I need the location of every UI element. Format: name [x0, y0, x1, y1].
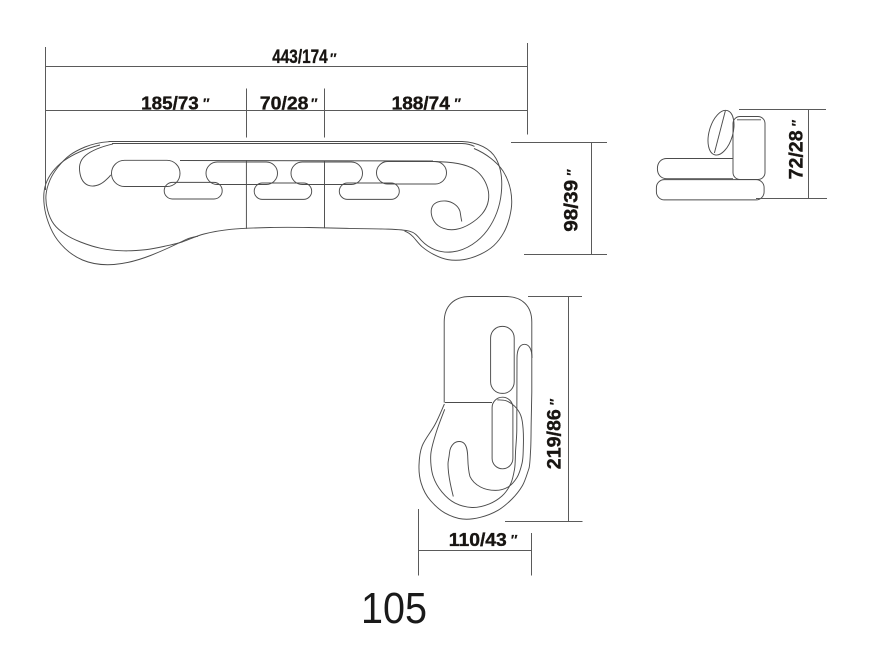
svg-text:″: ″ — [454, 95, 461, 111]
svg-text:″: ″ — [330, 50, 337, 66]
svg-text:72/28: 72/28 — [786, 130, 808, 179]
svg-text:″: ″ — [311, 95, 318, 111]
svg-text:70/28: 70/28 — [260, 93, 309, 114]
svg-text:98/39: 98/39 — [561, 180, 583, 232]
svg-text:110/43: 110/43 — [449, 529, 507, 550]
svg-text:″: ″ — [203, 95, 210, 111]
svg-text:105: 105 — [361, 584, 427, 633]
svg-text:″: ″ — [564, 169, 580, 176]
svg-text:188/74: 188/74 — [392, 93, 451, 114]
svg-text:443/174: 443/174 — [272, 47, 328, 68]
svg-text:″: ″ — [547, 398, 563, 405]
svg-text:185/73: 185/73 — [141, 93, 199, 114]
svg-text:″: ″ — [789, 119, 805, 126]
svg-text:219/86: 219/86 — [544, 409, 566, 469]
svg-text:″: ″ — [511, 532, 518, 548]
